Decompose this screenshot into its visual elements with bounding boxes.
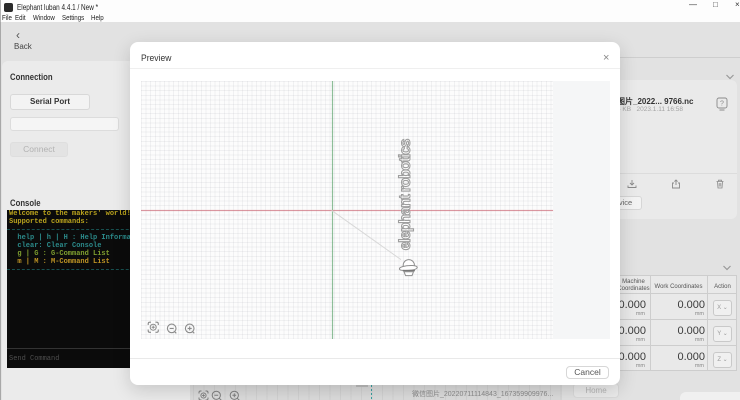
svg-text:?: ? [720, 101, 724, 108]
